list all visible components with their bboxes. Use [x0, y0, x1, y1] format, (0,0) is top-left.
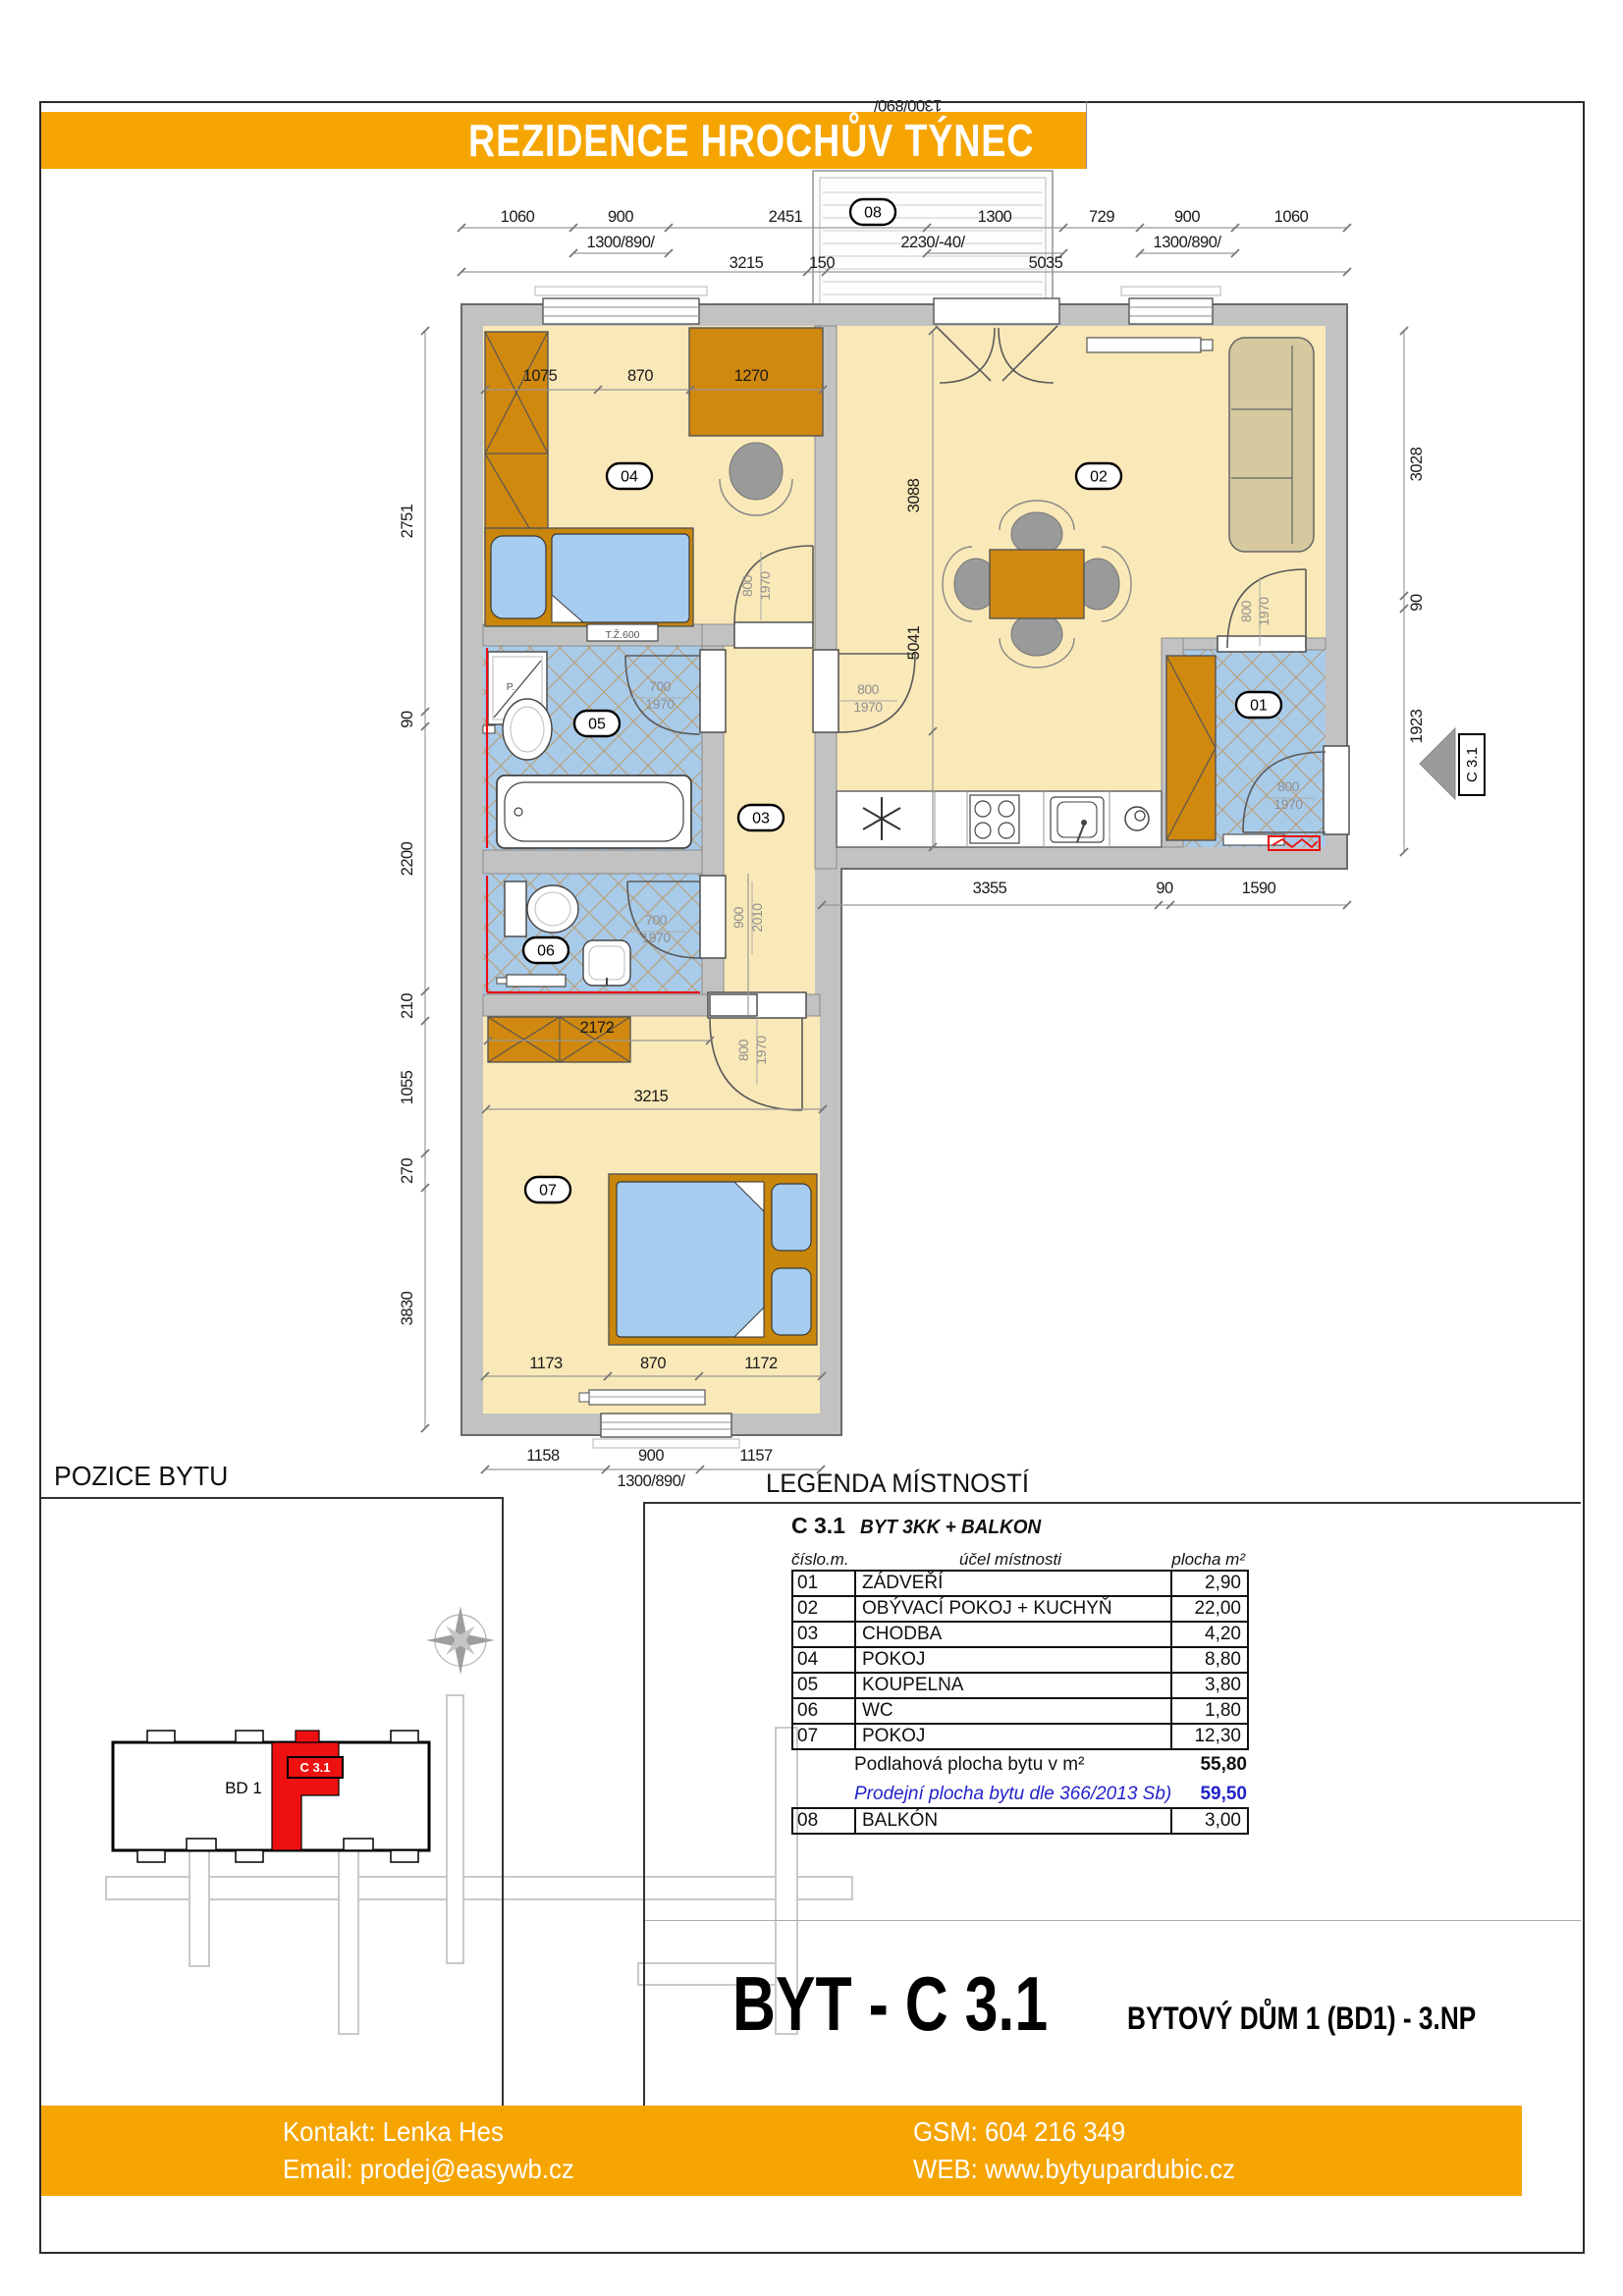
- svg-text:02: 02: [1090, 469, 1108, 486]
- footer-gsm-block: GSM: 604 216 349 WEB: www.bytyupardubic.…: [913, 2113, 1235, 2188]
- dim-label: 700: [649, 678, 672, 694]
- dim-label: 1970: [1273, 796, 1303, 812]
- dim-label: 2230/-40/: [900, 234, 965, 251]
- dim-label: 1055: [399, 1070, 416, 1104]
- svg-text:03: 03: [752, 811, 770, 828]
- dim-label: 800: [857, 681, 880, 697]
- single-bed: [485, 528, 693, 626]
- legend-title-row: C 3.1 BYT 3KK + BALKON: [791, 1513, 1249, 1546]
- dim-label: 1172: [744, 1355, 778, 1372]
- dim-label: 1300/890/: [587, 234, 656, 251]
- dim-label: 150: [809, 254, 835, 272]
- table-row: 07POKOJ12,30: [791, 1723, 1249, 1750]
- summary-row-sale-area: Prodejní plocha bytu dle 366/2013 Sb) 59…: [791, 1780, 1249, 1809]
- dim-label: 5035: [1029, 254, 1063, 272]
- legend-header-row: číslo.m. účel místnosti plocha m²: [791, 1546, 1249, 1572]
- legend-balcony-row: 08BALKÓN3,00: [791, 1807, 1249, 1835]
- room-badge: 03: [738, 805, 784, 830]
- floor-plan-drawing: BD 1 C 3.1: [0, 0, 1623, 2296]
- dim-label: 3830: [399, 1291, 416, 1325]
- dim-label: P.: [507, 681, 515, 693]
- dim-label: 2010: [749, 903, 765, 933]
- table-row: 03CHODBA4,20: [791, 1621, 1249, 1648]
- dim-label: T.Ž.600: [605, 628, 639, 641]
- kitchen-counter: [837, 791, 1162, 847]
- table-row: 04POKOJ8,80: [791, 1646, 1249, 1674]
- header-banner: REZIDENCE HROCHŮV TÝNEC: [41, 112, 1086, 169]
- dim-label: 700: [645, 912, 668, 928]
- dim-label: 1970: [853, 699, 883, 715]
- dim-label: 5041: [905, 625, 923, 660]
- entry-marker: C 3.1: [1420, 728, 1485, 799]
- double-bed: [609, 1174, 817, 1345]
- legend-unit-code: C 3.1: [791, 1513, 860, 1539]
- dim-label: 2200: [399, 841, 416, 876]
- dim-label: 270: [399, 1158, 416, 1184]
- toilet-icon: [505, 881, 578, 936]
- table-row: 05KOUPELNA3,80: [791, 1672, 1249, 1699]
- cooktop-icon: [970, 795, 1019, 843]
- building-label: BD 1: [225, 1779, 262, 1797]
- dim-label: 800: [1277, 778, 1300, 794]
- col-header-number: číslo.m.: [791, 1550, 852, 1570]
- col-header-area: plocha m²: [1168, 1550, 1245, 1570]
- legend-unit-type: BYT 3KK + BALKON: [860, 1517, 1041, 1539]
- section-divider: [502, 1497, 504, 2106]
- chair: [730, 443, 783, 500]
- footer-gsm: GSM: 604 216 349: [913, 2113, 1235, 2151]
- dim-label: 1300: [978, 208, 1012, 226]
- dim-label: 90: [399, 711, 416, 728]
- banner-divider: [1086, 101, 1087, 169]
- dim-label: 2172: [580, 1019, 615, 1037]
- pozice-underline: [41, 1497, 503, 1499]
- dim-label: 2451: [769, 208, 803, 226]
- svg-text:08: 08: [864, 205, 882, 222]
- dim-label: 1590: [1242, 880, 1276, 897]
- dim-label: 1060: [501, 208, 535, 226]
- svg-text:06: 06: [537, 943, 555, 960]
- footer-banner: Kontakt: Lenka Hes Email: prodej@easywb.…: [41, 2106, 1522, 2196]
- dim-label: 1270: [734, 367, 769, 385]
- room-badge: 02: [1076, 463, 1121, 489]
- svg-text:04: 04: [621, 469, 638, 486]
- dim-label: 870: [627, 367, 653, 385]
- col-header-purpose: účel místnosti: [852, 1550, 1168, 1570]
- dim-label: 210: [399, 993, 416, 1019]
- dim-label: 800: [735, 1039, 751, 1061]
- room-badge: 08: [850, 199, 895, 225]
- wc-sink-icon: [583, 940, 630, 986]
- bathtub-icon: [497, 775, 691, 848]
- dim-label: 3215: [634, 1088, 669, 1105]
- dim-label: 800: [739, 574, 755, 597]
- floor-plan: C 3.1 1300/890/1060900245113007299001060…: [399, 96, 1485, 1490]
- dim-label: 1173: [529, 1355, 563, 1372]
- legend-rows: 01ZÁDVEŘÍ2,9002OBÝVACÍ POKOJ + KUCHYŇ22,…: [791, 1570, 1249, 1750]
- unit-label: C 3.1: [299, 1760, 330, 1775]
- dim-label: 900: [730, 906, 746, 929]
- page-title: REZIDENCE HROCHŮV TÝNEC: [468, 114, 1086, 167]
- dim-label: 1300/890/: [1154, 234, 1222, 251]
- dim-label: 870: [640, 1355, 666, 1372]
- footer-contact-block: Kontakt: Lenka Hes Email: prodej@easywb.…: [283, 2113, 574, 2188]
- legend-divider: [643, 1502, 645, 2106]
- svg-text:05: 05: [588, 717, 606, 733]
- dim-label: 3355: [973, 880, 1007, 897]
- dim-label: 3215: [730, 254, 764, 272]
- dim-label: 90: [1408, 594, 1426, 612]
- legend-heading: LEGENDA MÍSTNOSTÍ: [766, 1468, 1029, 1499]
- dim-label: 1923: [1408, 709, 1426, 743]
- footer-contact: Kontakt: Lenka Hes: [283, 2113, 574, 2151]
- legend-underline: [644, 1502, 1581, 1504]
- compass-icon: [426, 1606, 495, 1675]
- dim-label: 1970: [753, 1036, 769, 1065]
- dining-table: [990, 550, 1084, 618]
- radiator-icon: [579, 1390, 705, 1405]
- footer-web: WEB: www.bytyupardubic.cz: [913, 2151, 1235, 2188]
- sofa: [1229, 338, 1314, 552]
- table-row: 02OBÝVACÍ POKOJ + KUCHYŇ22,00: [791, 1595, 1249, 1623]
- dim-label: 3088: [905, 478, 923, 512]
- pozice-heading: POZICE BYTU: [54, 1461, 228, 1492]
- building-outline: BD 1 C 3.1: [113, 1731, 429, 1862]
- dim-label: 1158: [526, 1447, 560, 1465]
- footer-email: Email: prodej@easywb.cz: [283, 2151, 574, 2188]
- apartment-subtitle: BYTOVÝ DŮM 1 (BD1) - 3.NP: [1127, 2001, 1476, 2037]
- apartment-title: BYT - C 3.1: [732, 1959, 1048, 2049]
- table-row: 01ZÁDVEŘÍ2,90: [791, 1570, 1249, 1597]
- room-badge: 05: [574, 711, 620, 736]
- dim-label: 729: [1089, 208, 1114, 226]
- dim-label: 1157: [739, 1447, 773, 1465]
- dim-label: 900: [608, 208, 633, 226]
- room-badge: 04: [607, 463, 652, 489]
- dim-label: 1970: [645, 696, 675, 712]
- dim-label: 1060: [1274, 208, 1309, 226]
- dim-label: 3028: [1408, 447, 1426, 481]
- summary-row-floor-area: Podlahová plocha bytu v m² 55,80: [791, 1750, 1249, 1780]
- dim-label: 90: [1156, 880, 1173, 897]
- dim-label: 800: [1238, 600, 1254, 622]
- room-badge: 07: [525, 1177, 570, 1202]
- room-badge: 06: [523, 937, 568, 963]
- title-separator: [645, 1920, 1581, 1921]
- dim-label: 1970: [757, 571, 773, 601]
- dim-label: 1970: [641, 930, 671, 945]
- kitchen-sink-icon: [1051, 797, 1104, 842]
- table-row: 06WC1,80: [791, 1697, 1249, 1725]
- entry-marker-label: C 3.1: [1464, 747, 1481, 782]
- dim-label: 1970: [1256, 597, 1271, 626]
- tv-board: [1087, 338, 1201, 352]
- dim-label: 2751: [399, 504, 416, 538]
- dim-label: 1075: [523, 367, 558, 385]
- legend-table: C 3.1 BYT 3KK + BALKON číslo.m. účel mís…: [791, 1513, 1249, 1835]
- room-badge: 01: [1236, 692, 1281, 718]
- dim-label: 1300/890/: [618, 1472, 686, 1490]
- svg-text:01: 01: [1250, 698, 1268, 715]
- table-row: 08BALKÓN3,00: [791, 1807, 1249, 1835]
- dim-label: 900: [638, 1447, 664, 1465]
- dim-label: 900: [1174, 208, 1200, 226]
- svg-text:07: 07: [539, 1183, 557, 1200]
